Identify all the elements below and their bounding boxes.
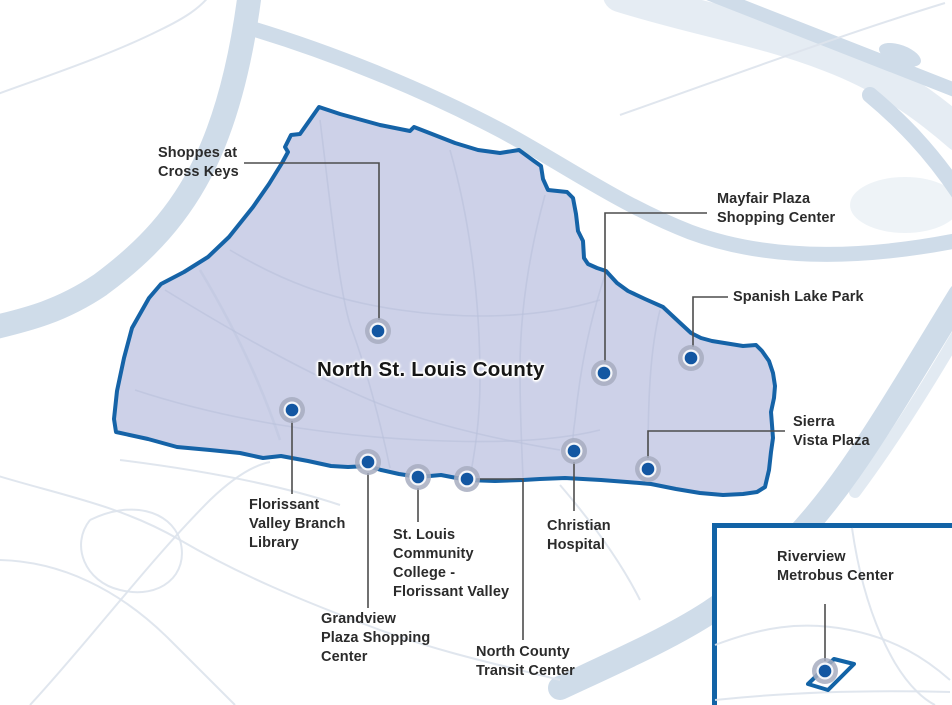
map-marker-riverview-metrobus-center[interactable] bbox=[812, 658, 838, 684]
map-marker-christian-hospital[interactable] bbox=[561, 438, 587, 464]
map-marker-st-louis-community-college-florissant-valley[interactable] bbox=[405, 464, 431, 490]
map-marker-spanish-lake-park[interactable] bbox=[678, 345, 704, 371]
map-marker-mayfair-plaza-shopping-center[interactable] bbox=[591, 360, 617, 386]
map-canvas bbox=[0, 0, 952, 705]
map-marker-sierra-vista-plaza[interactable] bbox=[635, 456, 661, 482]
map-marker-shoppes-at-cross-keys[interactable] bbox=[365, 318, 391, 344]
map-marker-florissant-valley-branch-library[interactable] bbox=[279, 397, 305, 423]
map-marker-north-county-transit-center[interactable] bbox=[454, 466, 480, 492]
map-figure: { "title": "North St. Louis County", "co… bbox=[0, 0, 952, 705]
leader-line-north-county-transit-center bbox=[477, 479, 523, 640]
map-marker-grandview-plaza-shopping-center[interactable] bbox=[355, 449, 381, 475]
